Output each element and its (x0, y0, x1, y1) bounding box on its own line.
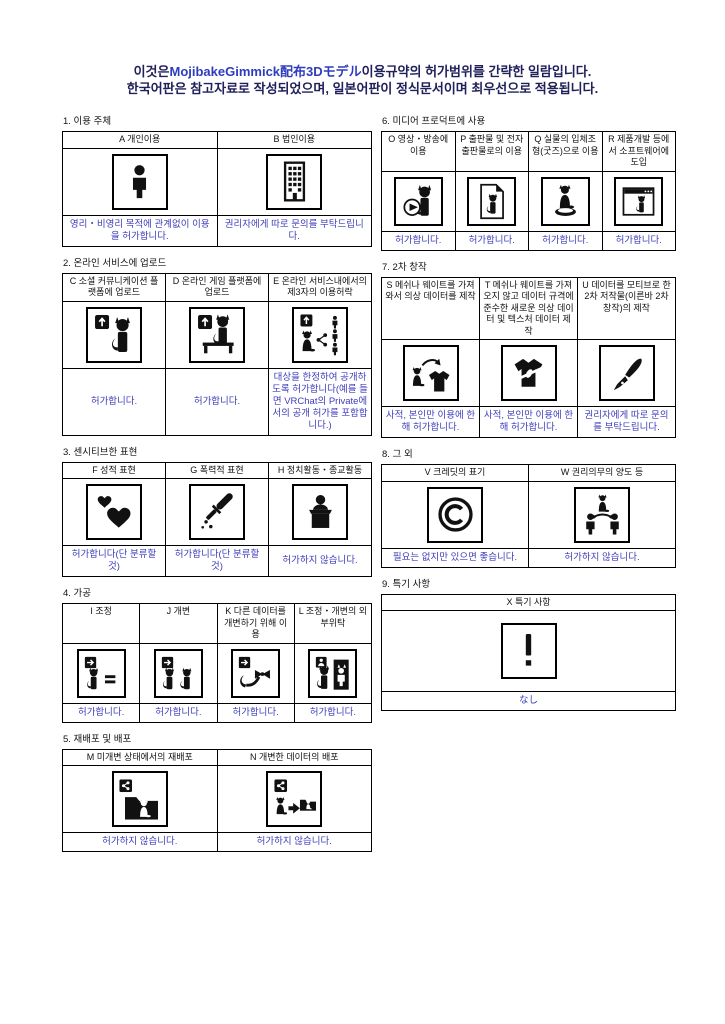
outsourcing-doorway-icon (314, 655, 351, 692)
cell-l-verdict: 허가합니다. (294, 703, 371, 722)
title-suffix: 이용규약의 허가범위를 간략한 일람입니다. (362, 64, 592, 79)
cell-h-icon-cell (269, 479, 372, 546)
section-3-label: 3. 센시티브한 표현 (63, 447, 372, 459)
section-6-table: O 영상・방송에 이용 P 출판물 및 전자출판물로의 이용 Q 실물의 입체조… (381, 131, 676, 251)
cell-i-icon-box (77, 649, 126, 698)
title-prefix: 이것은 (134, 64, 170, 79)
tail-ribbon-icon (237, 655, 274, 692)
upload-social-cat-icon (93, 313, 136, 356)
section-media-products: 6. 미디어 프로덕트에 사용 O 영상・방송에 이용 P 출판물 및 전자출판… (381, 116, 676, 251)
cell-j-icon-box (154, 649, 203, 698)
cell-i-verdict: 허가합니다. (63, 703, 140, 722)
section-7-table: S 메쉬나 웨이트를 가져와서 의상 데이터를 제작 T 메쉬나 웨이트를 가져… (381, 277, 676, 439)
cell-r-header: R 제품개발 등에서 소프트웨어에 도입 (602, 132, 676, 172)
section-1-label: 1. 이용 주체 (63, 116, 372, 128)
cell-s-verdict: 사적, 본인만 이용에 한해 허가합니다. (382, 407, 480, 438)
cell-m-icon-cell (63, 766, 218, 833)
cell-n-header: N 개변한 데이터의 배포 (217, 749, 372, 766)
cell-r-icon-box (614, 177, 663, 226)
section-usage-subject: 1. 이용 주체 A 개인이용 B 법인이용 (62, 116, 372, 247)
section-5-label: 5. 재배포 및 배포 (63, 734, 372, 746)
section-4-table: I 조정 J 개변 K 다른 데이터를 개변하기 위해 이용 L 조정・개변의 … (62, 603, 372, 723)
cell-f-verdict: 허가합니다(단 분류할 것) (63, 546, 166, 577)
figurine-cat-icon (547, 183, 584, 220)
costume-from-cat-icon (409, 352, 452, 395)
cell-d-icon-cell (166, 301, 269, 368)
cell-f-header: F 성적 표현 (63, 462, 166, 479)
section-9-label: 9. 특기 사항 (382, 579, 676, 591)
cell-i-header: I 조정 (63, 604, 140, 644)
cell-c-verdict: 허가합니다. (63, 368, 166, 435)
cell-b-header: B 법인이용 (217, 132, 372, 149)
section-others: 8. 그 외 V 크레딧의 표기 W 권리의무의 양도 등 (381, 449, 676, 568)
cell-w-icon-cell (529, 481, 676, 548)
right-column: 6. 미디어 프로덕트에 사용 O 영상・방송에 이용 P 출판물 및 전자출판… (381, 116, 676, 722)
cell-d-icon-box (189, 307, 245, 363)
cell-u-header: U 데이터를 모티브로 한 2차 저작물(이른바 2차 창작)의 제작 (578, 277, 676, 340)
section-derivative-works: 7. 2차 창작 S 메쉬나 웨이트를 가져와서 의상 데이터를 제작 T 메쉬… (381, 262, 676, 439)
cell-a-icon-box (112, 154, 168, 210)
section-sensitive: 3. 센시티브한 표현 F 성적 표현 G 폭력적 표현 H 정치활동・종교활동 (62, 447, 372, 578)
exclamation-icon (507, 630, 550, 673)
cell-j-verdict: 허가합니다. (140, 703, 217, 722)
title-brand: MojibakeGimmick配布3Dモデル (169, 64, 361, 79)
cell-n-icon-box (266, 771, 322, 827)
page-title-line2: 한국어판은 참고자료로 작성되었으며, 일본어판이 정식문서이며 최우선으로 적… (0, 80, 725, 97)
section-7-label: 7. 2차 창작 (382, 262, 676, 274)
cell-q-icon-box (541, 177, 590, 226)
cell-n-icon-cell (217, 766, 372, 833)
upload-share-users-icon (299, 313, 342, 356)
copyright-icon (434, 493, 477, 536)
cell-w-icon-box (574, 487, 630, 543)
section-4-label: 4. 가공 (63, 588, 372, 600)
garment-ribbon-icon (507, 352, 550, 395)
cell-t-icon-box (501, 345, 557, 401)
folder-share-cat-icon (118, 778, 161, 821)
section-5-table: M 미개변 상태에서의 재배포 N 개변한 데이터의 배포 (62, 749, 372, 853)
person-icon (118, 160, 161, 203)
cell-r-icon-cell (602, 171, 676, 231)
cell-h-verdict: 허가하지 않습니다. (269, 546, 372, 577)
section-special-notes: 9. 특기 사항 X 특기 사항 なし (381, 579, 676, 712)
adjust-cat-equal-icon (83, 655, 120, 692)
cell-h-icon-box (292, 484, 348, 540)
cell-m-header: M 미개변 상태에서의 재배포 (63, 749, 218, 766)
cell-s-icon-cell (382, 340, 480, 407)
cell-c-header: C 소셜 커뮤니케이션 플랫폼에 업로드 (63, 273, 166, 301)
cell-b-icon-cell (217, 148, 372, 215)
video-play-cat-icon (400, 183, 437, 220)
cell-v-icon-cell (382, 481, 529, 548)
cell-k-verdict: 허가합니다. (217, 703, 294, 722)
section-2-table: C 소셜 커뮤니케이션 플랫폼에 업로드 D 온라인 게임 플랫폼에 업로드 E… (62, 273, 372, 436)
cell-l-header: L 조정・개변의 외부위탁 (294, 604, 371, 644)
cell-w-header: W 권리의무의 양도 등 (529, 465, 676, 482)
cell-k-icon-box (231, 649, 280, 698)
section-3-table: F 성적 표현 G 폭력적 표현 H 정치활동・종교활동 (62, 462, 372, 578)
cell-q-verdict: 허가합니다. (529, 231, 603, 250)
cell-g-header: G 폭력적 표현 (166, 462, 269, 479)
cell-u-icon-cell (578, 340, 676, 407)
cell-a-verdict: 영리・비영리 목적에 관계없이 이용을 허가합니다. (63, 215, 218, 246)
cell-q-icon-cell (529, 171, 603, 231)
cell-q-header: Q 실물의 입체조형(굿즈)으로 이용 (529, 132, 603, 172)
cell-m-icon-box (112, 771, 168, 827)
cell-e-icon-box (292, 307, 348, 363)
section-processing: 4. 가공 I 조정 J 개변 K 다른 데이터를 개변하기 위해 이용 L 조… (62, 588, 372, 723)
cell-r-verdict: 허가합니다. (602, 231, 676, 250)
cell-k-icon-cell (217, 643, 294, 703)
cell-m-verdict: 허가하지 않습니다. (63, 833, 218, 852)
cell-o-icon-box (394, 177, 443, 226)
cell-o-icon-cell (382, 171, 456, 231)
cell-l-icon-box (308, 649, 357, 698)
cell-g-verdict: 허가합니다(단 분류할 것) (166, 546, 269, 577)
cell-e-verdict: 대상을 한정하여 공개하도록 허가합니다(예를 들면 VRChat의 Priva… (269, 368, 372, 435)
cell-e-header: E 온라인 서비스내에서의 제3자의 이용허락 (269, 273, 372, 301)
cell-d-header: D 온라인 게임 플랫폼에 업로드 (166, 273, 269, 301)
upload-game-cat-icon (196, 313, 239, 356)
section-redistribution: 5. 재배포 및 배포 M 미개변 상태에서의 재배포 N 개변한 데이터의 배… (62, 734, 372, 853)
cell-t-header: T 메쉬나 웨이트를 가져오지 않고 데이터 규격에 준수한 새로운 의상 데이… (480, 277, 578, 340)
cell-u-icon-box (599, 345, 655, 401)
cell-a-header: A 개인이용 (63, 132, 218, 149)
cell-f-icon-box (86, 484, 142, 540)
cell-b-icon-box (266, 154, 322, 210)
cell-t-verdict: 사적, 본인만 이용에 한해 허가합니다. (480, 407, 578, 438)
modified-folder-cat-icon (273, 778, 316, 821)
cell-p-icon-box (467, 177, 516, 226)
cell-k-header: K 다른 데이터를 개변하기 위해 이용 (217, 604, 294, 644)
section-1-table: A 개인이용 B 법인이용 (62, 131, 372, 247)
cell-t-icon-cell (480, 340, 578, 407)
cell-u-verdict: 권리자에게 따로 문의를 부탁드립니다. (578, 407, 676, 438)
software-window-cat-icon (620, 183, 657, 220)
section-6-label: 6. 미디어 프로덕트에 사용 (382, 116, 676, 128)
section-9-table: X 특기 사항 なし (381, 594, 676, 712)
cell-c-icon-cell (63, 301, 166, 368)
cell-x-header: X 특기 사항 (382, 594, 676, 611)
cell-e-icon-cell (269, 301, 372, 368)
cell-a-icon-cell (63, 148, 218, 215)
cell-h-header: H 정치활동・종교활동 (269, 462, 372, 479)
left-column: 1. 이용 주체 A 개인이용 B 법인이용 (62, 116, 372, 863)
cell-p-icon-cell (455, 171, 529, 231)
cell-x-verdict: なし (382, 692, 676, 711)
cell-l-icon-cell (294, 643, 371, 703)
cell-g-icon-box (189, 484, 245, 540)
page-title-line1: 이것은MojibakeGimmick配布3Dモデル이용규약의 허가범위를 간략한… (0, 63, 725, 80)
cell-v-verdict: 필요는 없지만 있으면 좋습니다. (382, 548, 529, 567)
cell-c-icon-box (86, 307, 142, 363)
cell-s-icon-box (403, 345, 459, 401)
cell-j-header: J 개변 (140, 604, 217, 644)
section-online-upload: 2. 온라인 서비스에 업로드 C 소셜 커뮤니케이션 플랫폼에 업로드 D 온… (62, 258, 372, 436)
cell-j-icon-cell (140, 643, 217, 703)
cell-x-icon-cell (382, 611, 676, 692)
cell-v-header: V 크레딧의 표기 (382, 465, 529, 482)
building-icon (273, 160, 316, 203)
section-2-label: 2. 온라인 서비스에 업로드 (63, 258, 372, 270)
section-8-label: 8. 그 외 (382, 449, 676, 461)
podium-speaker-icon (299, 491, 342, 534)
cell-p-header: P 출판물 및 전자출판물로의 이용 (455, 132, 529, 172)
cell-v-icon-box (427, 487, 483, 543)
modify-two-cats-icon (160, 655, 197, 692)
section-8-table: V 크레딧의 표기 W 권리의무의 양도 등 (381, 464, 676, 568)
rights-transfer-icon (581, 493, 624, 536)
cell-s-header: S 메쉬나 웨이트를 가져와서 의상 데이터를 제작 (382, 277, 480, 340)
cell-p-verdict: 허가합니다. (455, 231, 529, 250)
cell-f-icon-cell (63, 479, 166, 546)
document-cat-icon (473, 183, 510, 220)
page-title: 이것은MojibakeGimmick配布3Dモデル이용규약의 허가범위를 간략한… (0, 63, 725, 97)
cell-x-icon-box (501, 623, 557, 679)
cell-w-verdict: 허가하지 않습니다. (529, 548, 676, 567)
cell-n-verdict: 허가하지 않습니다. (217, 833, 372, 852)
cell-o-verdict: 허가합니다. (382, 231, 456, 250)
hearts-icon (93, 491, 136, 534)
cell-d-verdict: 허가합니다. (166, 368, 269, 435)
knife-icon (196, 491, 239, 534)
cell-g-icon-cell (166, 479, 269, 546)
fountain-pen-icon (605, 352, 648, 395)
cell-o-header: O 영상・방송에 이용 (382, 132, 456, 172)
cell-i-icon-cell (63, 643, 140, 703)
cell-b-verdict: 권리자에게 따로 문의를 부탁드립니다. (217, 215, 372, 246)
